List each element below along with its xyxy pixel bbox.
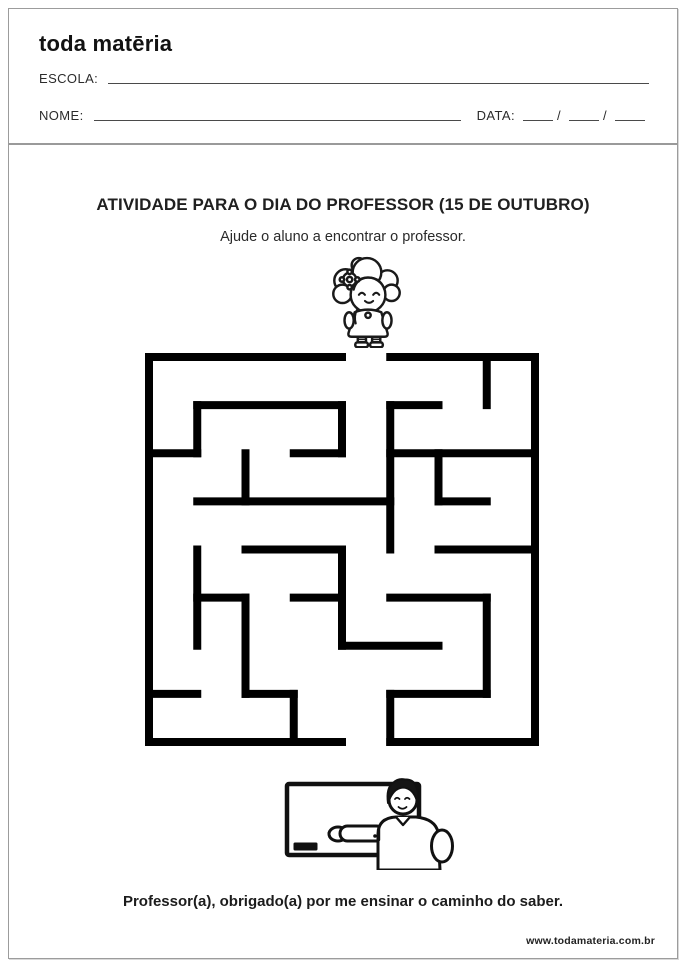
student-girl-drawing [328,256,406,348]
school-label: ESCOLA: [39,71,98,87]
date-slash: / [557,108,561,124]
name-label: NOME: [39,108,84,124]
school-blank-line [108,82,649,84]
worksheet-page: toda matēria ESCOLA: NOME: DATA: / / ATI… [8,8,678,959]
name-date-field-row: NOME: DATA: / / [39,108,649,124]
toda-materia-logo: toda matēria [39,31,172,57]
footer-website-url: www.todamateria.com.br [526,935,655,947]
date-label: DATA: [477,108,515,124]
date-year-blank [615,119,645,121]
maze-svg [145,353,539,746]
header-divider [8,143,678,145]
student-illustration [328,256,406,348]
teacher-illustration [282,770,462,870]
school-field-row: ESCOLA: [39,71,649,87]
date-day-blank [523,119,553,121]
teacher-at-board-drawing [282,770,462,870]
name-blank-line [94,119,461,121]
thank-you-message: Professor(a), obrigado(a) por me ensinar… [9,893,677,910]
date-slash: / [603,108,607,124]
activity-instruction: Ajude o aluno a encontrar o professor. [9,229,677,245]
date-month-blank [569,119,599,121]
activity-title: ATIVIDADE PARA O DIA DO PROFESSOR (15 DE… [9,195,677,215]
maze [145,353,539,746]
